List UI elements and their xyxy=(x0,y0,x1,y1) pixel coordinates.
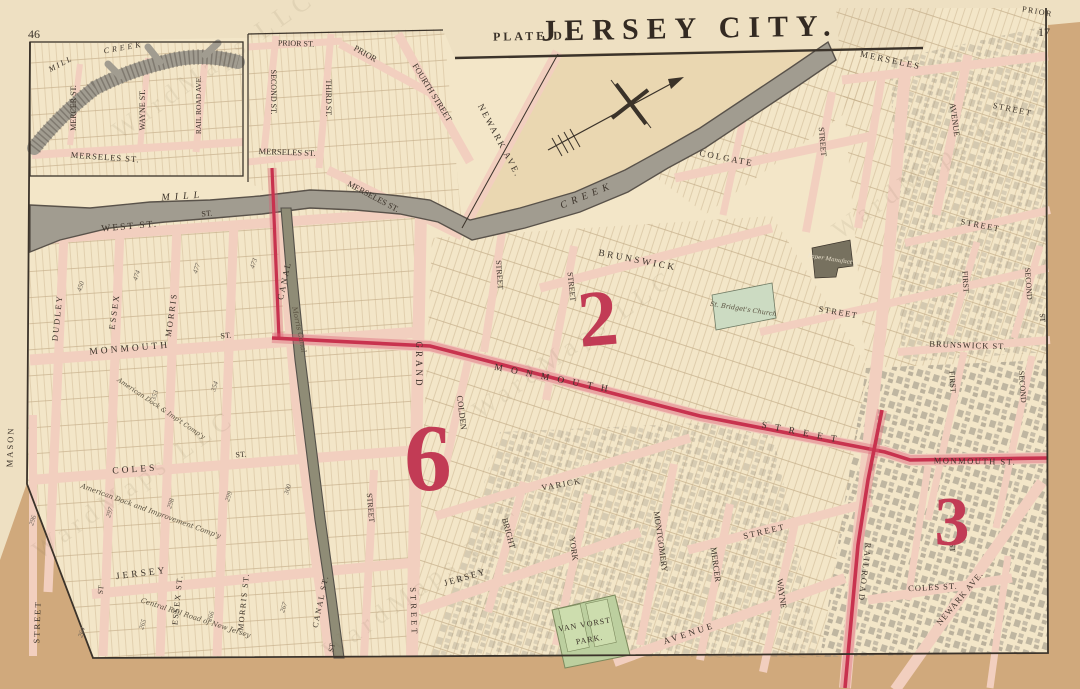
label-third-inset: THIRD ST. xyxy=(324,79,333,116)
label-st-2: ST. xyxy=(220,331,231,341)
page-number-left: 46 xyxy=(28,27,40,41)
label-merseles-inset2: MERSELES ST. xyxy=(258,146,315,158)
plate-label: PLATE D. xyxy=(493,28,571,43)
label-grand: GRAND xyxy=(414,341,424,388)
label-st-5: ST xyxy=(96,585,106,595)
jersey-city-plate-d-map: JERSEY CITY. PLATE D. 46 17 WEST ST. MON… xyxy=(0,0,1080,689)
label-first-lower: FIRST xyxy=(947,371,958,393)
label-first-upper: FIRST xyxy=(960,271,971,293)
map-title: JERSEY CITY. xyxy=(541,9,839,47)
ward-number-6: 6 xyxy=(404,405,452,511)
label-mason: MASON xyxy=(4,426,15,467)
label-monmouth-right: MONMOUTH ST. xyxy=(934,455,1017,466)
label-st-3: ST. xyxy=(235,450,246,460)
label-prior-st: PRIOR ST. xyxy=(278,38,315,48)
atlas-map-sheet: JERSEY CITY. PLATE D. 46 17 WEST ST. MON… xyxy=(0,0,1080,689)
label-inset-mercer: MERCER ST. xyxy=(69,85,78,131)
ward-number-3: 3 xyxy=(935,484,970,561)
label-second-inset: SECOND ST. xyxy=(269,70,278,115)
label-st-1: ST. xyxy=(201,209,212,219)
label-street-left-edge: STREET xyxy=(31,600,43,643)
label-st-7: ST xyxy=(1038,313,1048,323)
page-number-right: 17 xyxy=(1038,25,1050,39)
